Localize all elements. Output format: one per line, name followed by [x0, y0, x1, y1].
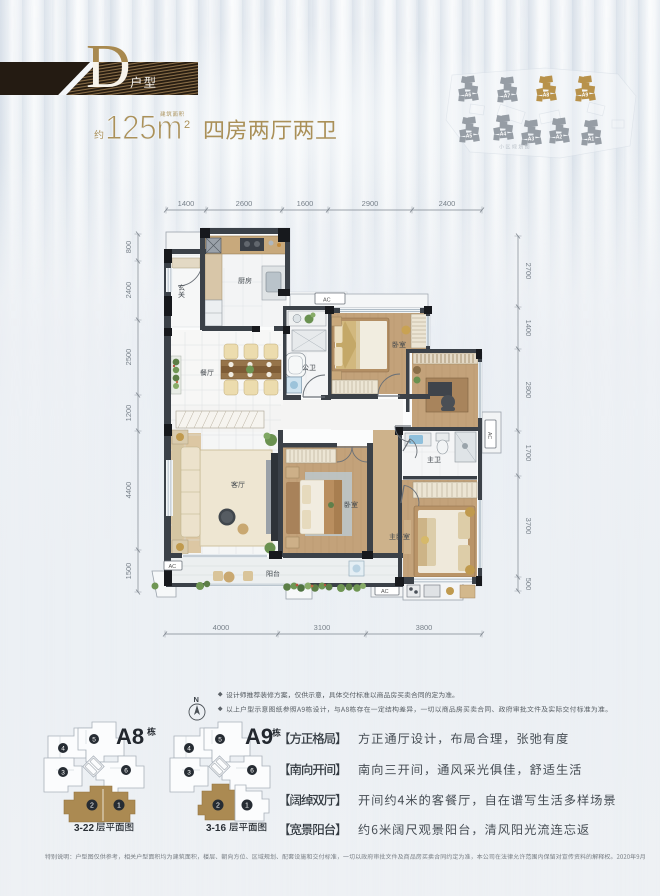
svg-text:2: 2	[90, 803, 94, 810]
svg-text:1200: 1200	[124, 405, 133, 422]
svg-text:AC: AC	[486, 432, 492, 439]
svg-text:2600: 2600	[236, 199, 253, 208]
svg-text:A6: A6	[465, 93, 472, 99]
svg-text:1: 1	[245, 803, 249, 810]
svg-text:2: 2	[184, 119, 190, 131]
svg-text:A9: A9	[245, 724, 273, 749]
svg-text:AC: AC	[381, 589, 389, 595]
svg-text:3800: 3800	[416, 623, 433, 632]
svg-text:1700: 1700	[524, 445, 533, 462]
svg-text:3: 3	[187, 769, 191, 776]
svg-text:A1: A1	[588, 137, 595, 143]
svg-text:2500: 2500	[124, 349, 133, 366]
svg-text:1400: 1400	[178, 199, 195, 208]
svg-text:A9: A9	[582, 93, 589, 99]
svg-text:4: 4	[187, 745, 191, 752]
svg-text:6: 6	[250, 767, 254, 774]
svg-text:1: 1	[117, 803, 121, 810]
svg-text:1600: 1600	[297, 199, 314, 208]
svg-text:N: N	[194, 695, 199, 704]
svg-text:2900: 2900	[362, 199, 379, 208]
svg-text:3700: 3700	[524, 518, 533, 535]
svg-text:4: 4	[61, 745, 65, 752]
svg-text:A5: A5	[466, 134, 473, 140]
svg-text:A3: A3	[528, 137, 535, 143]
svg-text:A7: A7	[504, 94, 511, 100]
svg-text:500: 500	[524, 578, 533, 591]
svg-text:3100: 3100	[314, 623, 331, 632]
svg-text:3-16: 3-16	[206, 823, 226, 834]
svg-text:1500: 1500	[124, 563, 133, 580]
svg-text:5: 5	[218, 736, 222, 743]
svg-text:4000: 4000	[213, 623, 230, 632]
svg-text:A8: A8	[116, 724, 144, 749]
svg-text:2800: 2800	[524, 382, 533, 399]
svg-text:6: 6	[124, 767, 128, 774]
svg-text:AC: AC	[323, 298, 331, 304]
svg-text:A8: A8	[543, 93, 550, 99]
svg-text:3-22: 3-22	[74, 823, 94, 834]
svg-text:800: 800	[124, 241, 133, 254]
svg-text:3: 3	[61, 769, 65, 776]
svg-text:2400: 2400	[439, 199, 456, 208]
svg-text:A4: A4	[500, 132, 507, 138]
svg-text:2: 2	[216, 803, 220, 810]
svg-text:4400: 4400	[124, 482, 133, 499]
svg-text:2400: 2400	[124, 282, 133, 299]
svg-text:AC: AC	[169, 564, 177, 570]
svg-text:2700: 2700	[524, 263, 533, 280]
svg-text:1400: 1400	[524, 320, 533, 337]
svg-text:5: 5	[92, 736, 96, 743]
svg-text:A2: A2	[556, 135, 563, 141]
